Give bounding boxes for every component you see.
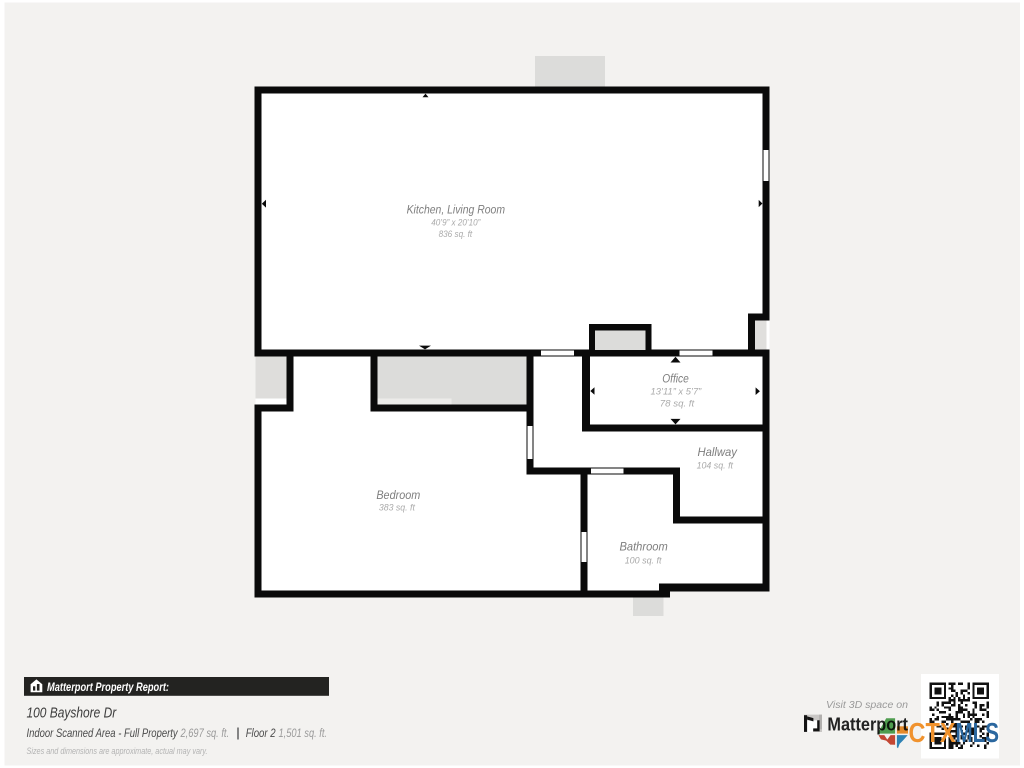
svg-text:Indoor Scanned Area - Full Pro: Indoor Scanned Area - Full Property (27, 726, 179, 740)
svg-text:Office: Office (662, 372, 689, 386)
svg-text:Matterport: Matterport (827, 714, 908, 735)
svg-text:1,501 sq. ft.: 1,501 sq. ft. (279, 726, 328, 740)
svg-text:CTX: CTX (909, 717, 956, 748)
svg-text:836 sq. ft: 836 sq. ft (439, 229, 473, 240)
svg-text:Matterport Property Report:: Matterport Property Report: (47, 682, 169, 694)
svg-text:100 Bayshore Dr: 100 Bayshore Dr (27, 705, 117, 722)
svg-text:Sizes and dimensions are appro: Sizes and dimensions are approximate, ac… (27, 746, 208, 756)
svg-text:Kitchen, Living Room: Kitchen, Living Room (407, 203, 505, 217)
svg-text:13’11” x 5’7”: 13’11” x 5’7” (651, 387, 703, 398)
svg-text:2,697 sq. ft.: 2,697 sq. ft. (180, 726, 229, 740)
svg-text:Floor 2: Floor 2 (246, 726, 276, 740)
svg-text:40’9” x 20’10”: 40’9” x 20’10” (431, 218, 481, 229)
svg-text:104 sq. ft: 104 sq. ft (697, 460, 734, 471)
svg-text:100 sq. ft: 100 sq. ft (625, 555, 662, 566)
svg-text:MLS: MLS (956, 717, 1000, 748)
svg-text:78 sq. ft: 78 sq. ft (660, 398, 695, 409)
svg-text:383 sq. ft: 383 sq. ft (379, 502, 415, 513)
svg-text:Bedroom: Bedroom (376, 488, 420, 502)
svg-text:Bathroom: Bathroom (619, 539, 667, 553)
svg-text:Visit 3D space on: Visit 3D space on (826, 700, 908, 711)
svg-text:Hallway: Hallway (697, 445, 737, 459)
